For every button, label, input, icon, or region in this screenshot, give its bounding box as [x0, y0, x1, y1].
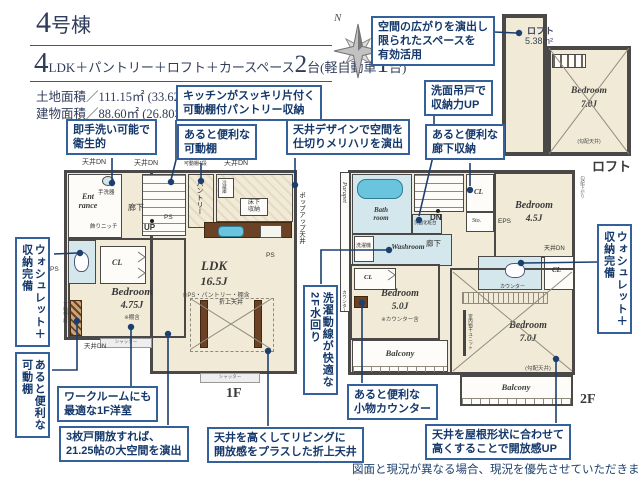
f1-shelf4-hatch	[70, 300, 82, 336]
f1-sink-icon	[218, 226, 244, 237]
f1-coffered-ceiling-label: 折上天井	[219, 300, 243, 307]
f1-pillar-right	[254, 300, 262, 348]
callout-movable-shelf-top: あると便利な 可動棚	[177, 124, 257, 160]
f1-ldk-note: ※PS・パントリー・棚含	[182, 290, 249, 299]
f2-washer-label: 洗濯機	[356, 244, 371, 250]
building-title: 4号棟	[36, 6, 91, 40]
f2-washroom-label: Washroom	[391, 242, 424, 251]
header-rule-bottom	[30, 81, 332, 82]
callout-workroom: ワークルームにも 最適な1F洋室	[57, 386, 158, 422]
f2-bedroom50-size: 5.0J	[392, 302, 409, 312]
callout-handwash: 即手洗い可能で 衛生的	[66, 119, 157, 155]
callout-goods-counter: あると便利な 小物カウンター	[347, 384, 438, 420]
plan-cars-count: 2	[295, 51, 308, 79]
callout-kitchen-pantry: キッチンがスッキリ片付く 可動棚付パントリー収納	[176, 85, 322, 121]
f2-parapet-label: Parapet	[341, 182, 348, 203]
f1-niche-label: 飾りニッチ	[90, 224, 118, 230]
floorplan-flyer: 4号棟 4LDK＋パントリー＋ロフト＋カースペース2台(軽自動車1台) 土地面積…	[0, 0, 640, 480]
f1-toilet-icon	[74, 252, 89, 272]
f2-ceiling-dn: 天井DN	[544, 246, 565, 253]
f1-ps-kitchen: PS	[266, 252, 275, 259]
f2-stairs	[414, 174, 464, 212]
f1-fridge-label: 冷蔵庫	[222, 180, 227, 194]
callout-laundry-line: 洗濯動線が快適な 2F水回り	[303, 285, 338, 395]
f2-bedroom45-size: 4.5J	[526, 214, 543, 224]
callout-washlet-right: ウォシュレット＋ 収納完備	[597, 224, 632, 334]
f1-pillar-left	[200, 300, 208, 348]
f1-entrance-label: Ent rance	[79, 192, 98, 210]
f2-counter2-label: カウンター	[500, 285, 525, 291]
header-rule-top	[30, 45, 332, 46]
f1-ldk-label: LDK	[201, 258, 227, 274]
f1-closet	[100, 246, 146, 284]
f2-bathtub-icon	[357, 179, 403, 199]
callout-ceiling-design: 天井デザインで空間を 仕切りメリハリを演出	[286, 119, 410, 155]
f2-counter-left-label: カウンター	[342, 290, 347, 313]
f1-ceiling-dn-bottom: 天井DN	[84, 343, 106, 350]
f2-bathroom-label: Bath room	[373, 206, 388, 222]
f1-stove-icon	[260, 225, 282, 238]
f1-ceiling-dn-2: 天井DN	[134, 160, 158, 168]
f1-hallway-label: 廊下	[128, 204, 144, 213]
callout-washlet-left: ウォシュレット＋ 収納完備	[15, 237, 50, 347]
f1-up-label: UP	[144, 224, 155, 233]
f2-balcony-right-railing	[462, 398, 571, 404]
loft-area-label: 5.38m²	[525, 36, 553, 46]
f2-storage-label: Sto.	[472, 218, 481, 224]
f1-ceiling-dn-3: 天井DN	[224, 160, 248, 168]
f2-balcony-left-label: Balcony	[386, 348, 415, 358]
f2-bedroom70-label: Bedroom	[509, 320, 547, 331]
loft-floor-label: ロフト	[592, 156, 631, 175]
f1-floor-label: 1F	[226, 386, 242, 402]
f1-shutter-2: シャッター	[200, 373, 260, 383]
f1-handwash-basin-icon	[102, 176, 114, 186]
f2-cl-stairs-label: CL	[474, 188, 483, 196]
f1-bedroom-size: 4.75J	[121, 300, 144, 311]
f1-ldk-size: 16.5J	[201, 274, 228, 289]
f2-eps-label: EPS	[498, 218, 511, 225]
callout-hall-storage: あると便利な 廊下収納	[425, 124, 505, 160]
f2-cl-bedroom50	[354, 268, 396, 290]
f2-cl-bedroom50-label: CL	[364, 274, 372, 281]
loft-slope-label: (勾配天井)	[577, 138, 600, 145]
f2-floor-label: 2F	[580, 392, 596, 408]
callout-loft-space: 空間の広がりを演出し 限られたスペースを 有効活用	[371, 16, 495, 66]
plan-rooms-count: 4	[34, 47, 49, 80]
f1-popup-ceiling-label: ポップアップ天井	[297, 192, 304, 244]
loft-bedroom-size: 7.0J	[581, 99, 597, 109]
f1-bedroom-note: ※棚含	[124, 313, 140, 321]
f1-shutter-1-label: シャッター	[115, 340, 138, 345]
callout-movable-shelf-left: あると便利な 可動棚	[15, 352, 50, 438]
loft-bedroom-label: Bedroom	[571, 86, 607, 96]
f1-ceiling-dn-1: 天井DN	[82, 159, 106, 167]
f2-bedroom45-label: Bedroom	[515, 200, 553, 211]
f1-shutter-1: シャッター	[100, 338, 152, 348]
f2-bedroom70-slope: (勾配天井)	[525, 364, 551, 372]
f1-closet-label: CL	[112, 258, 122, 267]
f1-shelf4-label: 可動棚4段	[63, 302, 68, 323]
f1-shelf4-top: 可動棚4段	[184, 162, 207, 168]
callout-high-ceiling: 天井を高くしてリビングに 開放感をプラスした折上天井	[207, 427, 364, 463]
f1-ps-left: PS	[50, 266, 59, 273]
callout-three-doors: 3枚戸開放すれば、 21.25帖の大空間を演出	[59, 426, 189, 462]
f2-dn-label: DN	[430, 214, 442, 223]
f2-bedroom70-size: 7.0J	[520, 334, 537, 344]
building-suffix: 号棟	[51, 15, 91, 37]
f1-pantry-label: パントリー	[196, 180, 203, 215]
f1-ps-stairs: PS	[164, 214, 173, 221]
loft-ladder-icon	[552, 54, 586, 68]
f2-laundry-unit-label: 室内物干ユニット	[468, 314, 473, 350]
f2-toilet-icon	[505, 263, 525, 278]
plan-rooms-text: LDK＋パントリー＋ロフト＋カースペース	[49, 57, 295, 76]
f2-hallway-label: 廊下	[426, 240, 441, 248]
f1-bedroom-label: Bedroom	[111, 286, 153, 298]
disclaimer-text: 図面と現況が異なる場合、現況を優先させていただきます。	[352, 461, 640, 480]
f1-shutter-2-label: シャッター	[219, 375, 242, 380]
f2-bedroom50-label: Bedroom	[381, 288, 419, 299]
building-number: 4	[36, 6, 51, 39]
f2-cl-right-label: CL	[552, 266, 561, 274]
f2-balcony-right-label: Balcony	[502, 382, 531, 392]
f1-handwash-basin-label: 手洗器	[98, 190, 115, 196]
callout-washbasin-cabinet: 洗面吊戸で 収納力UP	[424, 80, 493, 116]
callout-roof-ceiling: 天井を屋根形状に合わせて 高くすることで開放感UP	[425, 424, 571, 460]
f2-balcony-left-railing	[353, 366, 447, 372]
f2-bedroom50-note: ※カウンター含	[381, 315, 419, 323]
f2-counter-left-box	[354, 296, 368, 308]
f1-underfloor-label: 床下 収納	[248, 200, 260, 213]
f2-eaves-label: 勾配下がり	[580, 176, 585, 199]
